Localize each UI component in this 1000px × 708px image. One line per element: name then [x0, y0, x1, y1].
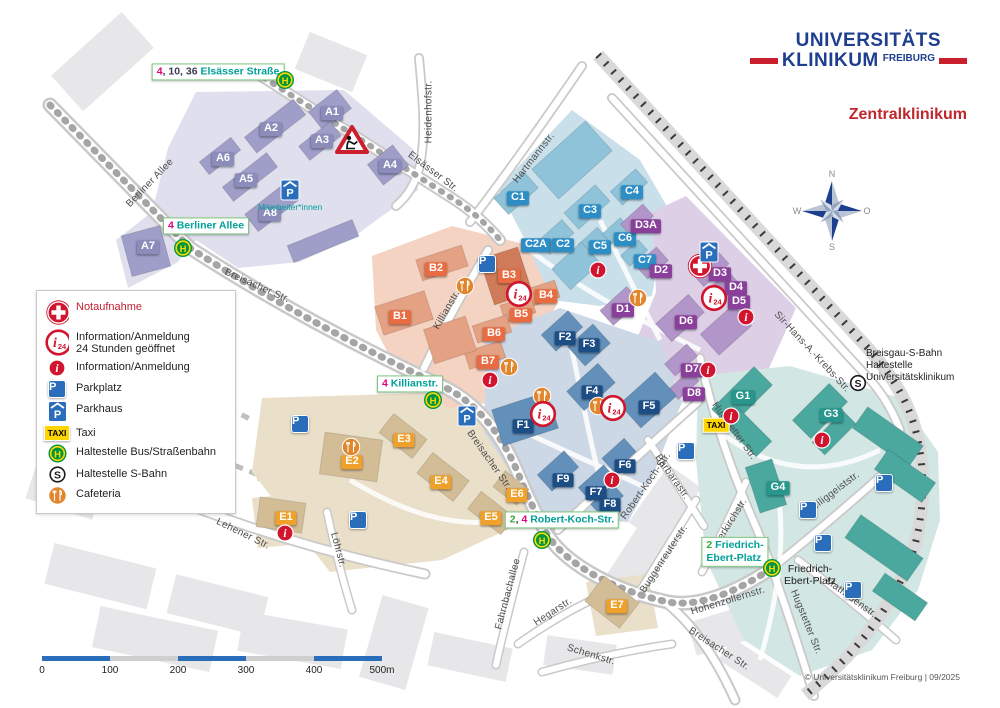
parking-icon: P	[844, 581, 862, 599]
building-label-b4: B4	[535, 289, 557, 303]
building-label-a4: A4	[379, 159, 401, 173]
street-label-els-sser-str-: Elsässer Str.	[406, 150, 461, 195]
info-icon: i	[276, 524, 294, 542]
info-icon: i	[699, 361, 717, 379]
building-label-b1: B1	[389, 310, 411, 324]
building-label-g4: G4	[767, 481, 790, 495]
transit-stop-label-berliner-allee: 4 Berliner Allee	[163, 217, 249, 234]
legend-label: Haltestelle S-Bahn	[76, 466, 167, 480]
info-24-icon: i24	[600, 395, 627, 422]
building-label-d6: D6	[675, 315, 697, 329]
sbahn-icon: S	[850, 375, 867, 392]
legend-label: Parkplatz	[76, 380, 122, 394]
svg-text:P: P	[705, 250, 712, 262]
emergency-icon	[45, 299, 69, 326]
legend-label: Taxi	[76, 425, 96, 439]
copyright-line: © Universitätsklinikum Freiburg | 09/202…	[0, 672, 960, 682]
building-label-a6: A6	[212, 152, 234, 166]
building-label-c2: C2	[552, 238, 574, 252]
cafeteria-icon	[342, 438, 361, 457]
svg-text:i: i	[53, 336, 57, 351]
transit-stop-label-elsaesser-strasse: 4, 10, 36 Elsässer Straße	[152, 63, 285, 80]
legend-item-i: iInformation/Anmeldung	[45, 359, 227, 377]
map-legend: Notaufnahmei24Information/Anmeldung 24 S…	[36, 290, 236, 514]
svg-text:H: H	[54, 449, 61, 460]
street-label-fahrnbachallee: Fahrnbachallee	[493, 557, 523, 630]
building-label-e5: E5	[480, 511, 501, 525]
svg-text:i: i	[709, 292, 713, 307]
info-24-icon: i24	[45, 329, 69, 356]
tram-stop-icon-elsaesser-strasse: H	[276, 71, 295, 90]
parking-icon: P	[875, 474, 893, 492]
building-label-a1: A1	[321, 106, 343, 120]
building-label-e7: E7	[606, 599, 627, 613]
transit-stop-label-friedrich-ebert-platz: 2 Friedrich-Ebert-Platz	[701, 537, 768, 567]
street-label-schenkstr-: Schenkstr.	[566, 642, 617, 667]
building-label-d3a: D3A	[631, 219, 661, 233]
logo-red-bar-left	[750, 58, 778, 64]
compass-star	[802, 181, 862, 241]
construction-icon	[334, 124, 370, 156]
info-icon: i	[722, 407, 740, 425]
street-label-hugstetter-str-: Hugstetter Str.	[788, 588, 824, 656]
building-label-c6: C6	[614, 232, 636, 246]
parking-icon: P	[814, 534, 832, 552]
svg-text:P: P	[53, 409, 60, 421]
legend-item-p: PParkplatz	[45, 380, 227, 398]
building-label-a5: A5	[235, 173, 257, 187]
info-icon: i	[589, 261, 607, 279]
info-24-icon: i24	[701, 285, 728, 312]
tram-stop-icon-berliner-allee: H	[174, 239, 193, 258]
parking-icon: P	[291, 415, 309, 433]
scale-segment	[110, 656, 178, 661]
building-label-d8: D8	[683, 387, 705, 401]
building-label-a3: A3	[311, 134, 333, 148]
parking-garage-icon: P	[700, 242, 719, 263]
legend-item-cafe: Cafeteria	[45, 486, 227, 505]
info-icon: i	[813, 431, 831, 449]
taxi-icon: TAXI	[45, 425, 69, 441]
sbahn-icon: S	[45, 466, 69, 483]
scale-segment	[314, 656, 382, 661]
building-label-b6: B6	[483, 327, 505, 341]
legend-label: Haltestelle Bus/Straßenbahn	[76, 444, 216, 458]
parking-icon: P	[45, 380, 69, 398]
svg-text:24: 24	[58, 342, 67, 351]
legend-item-s: SHaltestelle S-Bahn	[45, 466, 227, 483]
svg-text:S: S	[53, 469, 60, 481]
street-label-sir-hans-a-krebs-str-: Sir-Hans-A.-Krebs-Str.	[772, 309, 852, 394]
building-label-e1: E1	[275, 511, 296, 525]
logo-text-universitaets: UNIVERSITÄTS	[737, 30, 941, 52]
info-icon: i	[603, 471, 621, 489]
sbahn-note: Breisgau-S-Bahn Haltestelle Universitäts…	[866, 348, 954, 383]
transit-stop-label-robert-koch-str: 2, 4 Robert-Koch-Str.	[505, 511, 619, 528]
parking-garage-icon: P	[458, 406, 477, 427]
building-label-c1: C1	[507, 191, 529, 205]
scale-segment	[42, 656, 110, 661]
compass-rose: N O S W	[792, 168, 872, 252]
tram-stop-icon: H	[45, 444, 69, 463]
building-label-e2: E2	[341, 455, 362, 469]
legend-item-h: HHaltestelle Bus/Straßenbahn	[45, 444, 227, 463]
parking-icon: P	[677, 442, 695, 460]
svg-text:P: P	[463, 414, 470, 426]
parkhaus-staff-note: Mitarbeiter*innen	[258, 202, 322, 212]
building-label-f3: F3	[579, 338, 600, 352]
cafeteria-icon	[45, 486, 69, 505]
building-label-g1: G1	[732, 390, 755, 404]
legend-label: Information/Anmeldung 24 Stunden geöffne…	[76, 329, 190, 355]
cafeteria-icon	[500, 358, 519, 377]
street-label-breisacher-str-: Breisacher Str.	[464, 428, 513, 492]
building-label-f8: F8	[600, 498, 621, 512]
info-icon: i	[481, 371, 499, 389]
street-label-hohenzollernstr-: Hohenzollernstr.	[690, 584, 767, 617]
svg-text:H: H	[180, 244, 187, 255]
building-label-f5: F5	[639, 400, 660, 414]
street-label-l-hrstr-: Löhrstr.	[328, 531, 348, 568]
building-label-c3: C3	[579, 204, 601, 218]
building-label-b5: B5	[510, 308, 532, 322]
street-label-hegarstr-: Hegarstr.	[532, 596, 574, 629]
svg-text:24: 24	[612, 408, 621, 417]
place-label-friedrich-ebert-platz: Friedrich- Ebert-Platz	[784, 563, 836, 587]
building-label-a2: A2	[260, 122, 282, 136]
svg-text:H: H	[769, 564, 776, 575]
street-label-breisacher-str-: Breisacher Str.	[687, 625, 752, 672]
parking-icon: P	[349, 511, 367, 529]
svg-text:24: 24	[518, 294, 527, 303]
street-label-heidenhofstr-: Heidenhofstr.	[424, 81, 435, 144]
campus-map: Berliner AlleeElsässer Str.Heidenhofstr.…	[0, 0, 1000, 708]
legend-item-cross: Notaufnahme	[45, 299, 227, 326]
building-label-e4: E4	[430, 475, 451, 489]
svg-text:i: i	[608, 402, 612, 417]
building-label-f9: F9	[553, 473, 574, 487]
compass-n: N	[829, 169, 836, 179]
cafeteria-icon	[456, 277, 475, 296]
svg-text:24: 24	[542, 414, 551, 423]
building-label-e3: E3	[393, 433, 414, 447]
tram-stop-icon-friedrich-ebert-platz: H	[763, 559, 782, 578]
legend-item-ph: PParkhaus	[45, 401, 227, 422]
legend-label: Information/Anmeldung	[76, 359, 190, 373]
logo-text-freiburg: FREIBURG	[883, 53, 935, 64]
scale-segment	[246, 656, 314, 661]
svg-text:H: H	[282, 76, 289, 87]
clinic-logo: UNIVERSITÄTS KLINIKUM FREIBURG	[737, 30, 967, 72]
svg-text:i: i	[514, 288, 518, 303]
compass-w: W	[793, 206, 802, 216]
info-24-icon: i24	[530, 401, 557, 428]
street-label-berliner-allee: Berliner Allee	[124, 156, 176, 209]
building-label-b7: B7	[477, 355, 499, 369]
building-label-b2: B2	[425, 262, 447, 276]
building-label-g3: G3	[820, 408, 843, 422]
info-icon: i	[737, 308, 755, 326]
parking-garage-icon: P	[45, 401, 69, 422]
parking-garage-icon: P	[281, 180, 300, 201]
svg-text:24: 24	[713, 298, 722, 307]
legend-label: Cafeteria	[76, 486, 121, 500]
building-label-d4: D4	[725, 281, 747, 295]
street-label-buggenreuterstr-: Buggenreuterstr.	[638, 523, 690, 595]
scale-bar-segments	[42, 656, 382, 661]
compass-s: S	[829, 242, 835, 252]
tram-stop-icon-killianstr: H	[424, 391, 443, 410]
logo-red-bar-right	[939, 58, 967, 64]
building-label-e6: E6	[506, 488, 527, 502]
logo-text-klinikum: KLINIKUM	[782, 50, 879, 72]
svg-text:H: H	[430, 396, 437, 407]
svg-text:P: P	[286, 188, 293, 200]
building-label-f2: F2	[555, 331, 576, 345]
building-label-c5: C5	[589, 240, 611, 254]
tram-stop-icon-robert-koch-str: H	[533, 531, 552, 550]
parking-icon: P	[478, 255, 496, 273]
building-label-c2a: C2A	[521, 238, 551, 252]
parking-icon: P	[799, 501, 817, 519]
map-title: Zentralklinikum	[849, 106, 967, 124]
info-24-icon: i24	[506, 281, 533, 308]
legend-label: Parkhaus	[76, 401, 122, 415]
legend-item-taxi: TAXITaxi	[45, 425, 227, 441]
svg-text:i: i	[538, 408, 542, 423]
street-label-lehener-str-: Lehener Str.	[214, 516, 271, 551]
info-icon: i	[45, 359, 69, 377]
street-label-hartmannstr-: Hartmannstr.	[511, 131, 557, 186]
legend-item-i24: i24Information/Anmeldung 24 Stunden geöf…	[45, 329, 227, 356]
scale-segment	[178, 656, 246, 661]
svg-text:S: S	[854, 378, 861, 390]
svg-text:H: H	[539, 536, 546, 547]
cafeteria-icon	[629, 289, 648, 308]
compass-o: O	[863, 206, 870, 216]
building-label-c4: C4	[621, 185, 643, 199]
building-label-d5: D5	[728, 295, 750, 309]
building-label-d2: D2	[650, 264, 672, 278]
legend-label: Notaufnahme	[76, 299, 142, 313]
building-label-a7: A7	[137, 240, 159, 254]
